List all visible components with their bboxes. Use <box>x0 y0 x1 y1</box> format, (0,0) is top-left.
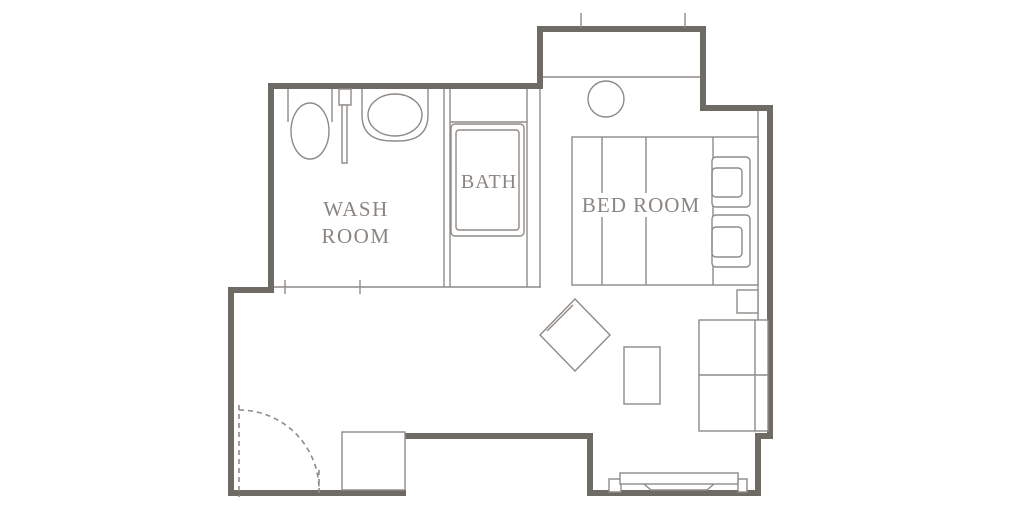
sink-counter-icon <box>362 89 428 141</box>
luggage-bench-icon <box>342 432 405 490</box>
floor-plan: WASH ROOM BATH BED ROOM <box>0 0 1024 527</box>
door-arc-icon <box>239 410 319 490</box>
pillow-icon <box>712 157 750 207</box>
window-sill-right-icon <box>738 479 747 492</box>
shower-partition-icon <box>339 89 351 105</box>
round-stool-icon <box>588 81 624 117</box>
shower-bar-icon <box>342 105 347 163</box>
floor-plan-svg: WASH ROOM BATH BED ROOM <box>0 0 1024 527</box>
living-furniture <box>342 299 768 492</box>
pillow-icon <box>712 215 750 267</box>
window-sill-left-icon <box>609 479 621 492</box>
toilet-bowl-icon <box>291 103 329 159</box>
washroom-fixtures <box>288 89 428 163</box>
bath-east-wall <box>527 89 540 287</box>
washroom-label-line2: ROOM <box>321 224 390 248</box>
side-table-icon <box>624 347 660 404</box>
washroom-label-line1: WASH <box>323 197 389 221</box>
bath-label: BATH <box>461 171 517 193</box>
nightstand-icon <box>737 290 758 313</box>
window-track-icon <box>644 484 714 490</box>
bedroom-label: BED ROOM <box>582 193 700 217</box>
entrance-door-swing <box>239 405 319 497</box>
diamond-table-icon <box>540 299 610 371</box>
bath-west-wall <box>444 89 450 287</box>
window-ledge-icon <box>620 473 738 484</box>
